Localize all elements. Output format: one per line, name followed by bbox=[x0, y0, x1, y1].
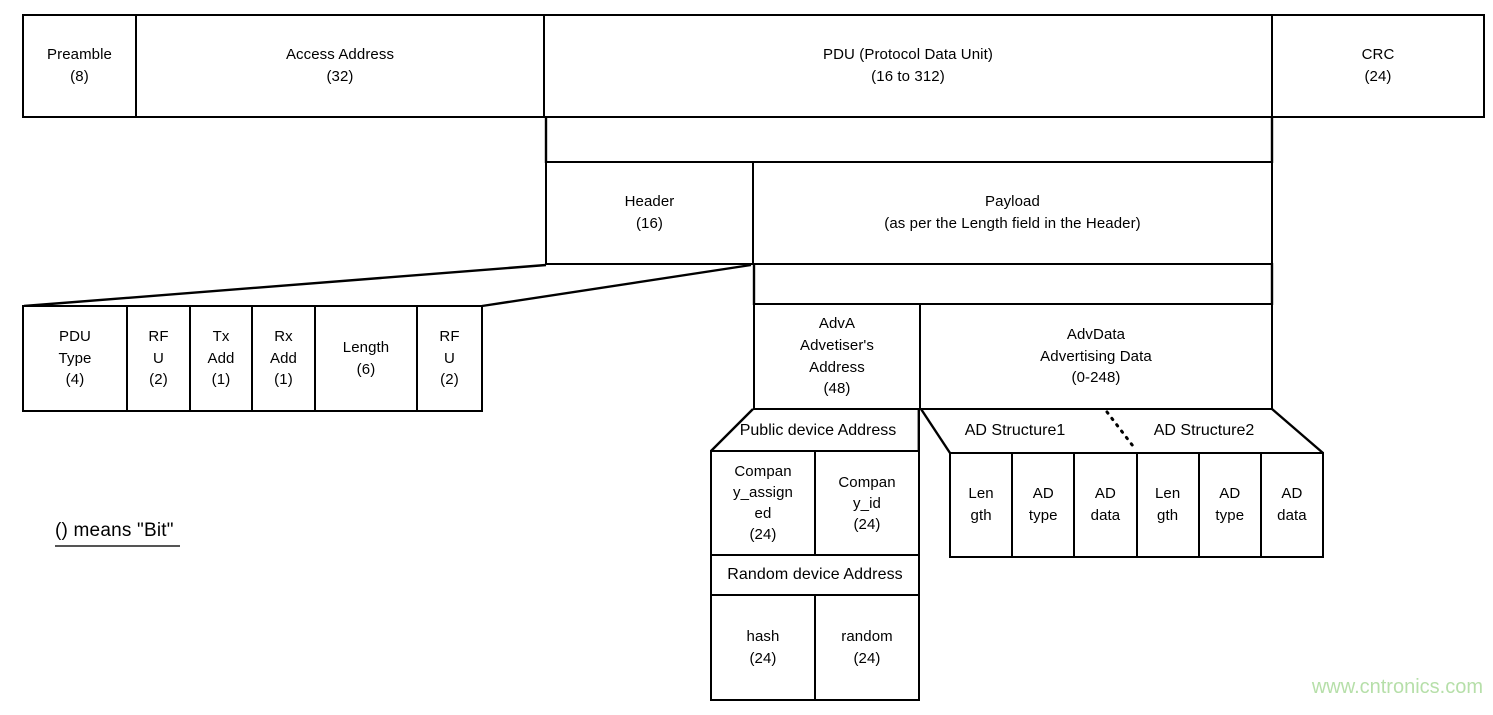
random-address-table: hash (24) random (24) bbox=[710, 596, 920, 701]
watermark-url: www.cntronics.com bbox=[1297, 676, 1483, 699]
ad-structure-table: Len gth AD type AD data Len gth AD type … bbox=[949, 452, 1324, 558]
random-label: random (24) bbox=[841, 626, 892, 670]
payload-label: Payload (as per the Length field in the … bbox=[884, 191, 1141, 235]
preamble-box: Preamble (8) bbox=[24, 16, 137, 116]
ad1-type-label: AD type bbox=[1029, 483, 1058, 527]
ble-packet-structure-diagram: Preamble (8) Access Address (32) PDU (Pr… bbox=[0, 0, 1493, 715]
rx-add-box: Rx Add (1) bbox=[253, 307, 316, 410]
rfu1-label: RF U (2) bbox=[148, 326, 168, 391]
ad2-type-label: AD type bbox=[1215, 483, 1244, 527]
pdu-breakdown-row: Header (16) Payload (as per the Length f… bbox=[545, 161, 1273, 265]
packet-row: Preamble (8) Access Address (32) PDU (Pr… bbox=[22, 14, 1485, 118]
ad1-data-box: AD data bbox=[1075, 454, 1137, 556]
payload-breakdown-row: AdvA Advetiser's Address (48) AdvData Ad… bbox=[753, 303, 1273, 410]
public-address-table: Compan y_assign ed (24) Compan y_id (24) bbox=[710, 450, 920, 556]
company-assigned-box: Compan y_assign ed (24) bbox=[712, 452, 816, 554]
length-label: Length (6) bbox=[343, 337, 389, 381]
crc-box: CRC (24) bbox=[1273, 16, 1483, 116]
ad1-data-label: AD data bbox=[1091, 483, 1121, 527]
advdata-label: AdvData Advertising Data (0-248) bbox=[1040, 324, 1152, 389]
bit-legend-note: () means "Bit" bbox=[55, 520, 180, 547]
adva-box: AdvA Advetiser's Address (48) bbox=[755, 305, 921, 408]
ad2-type-box: AD type bbox=[1200, 454, 1262, 556]
header-funnel-right bbox=[482, 265, 751, 306]
length-box: Length (6) bbox=[316, 307, 418, 410]
ad-structure1-band: AD Structure1 bbox=[950, 421, 1080, 440]
hash-box: hash (24) bbox=[712, 596, 816, 699]
rx-add-label: Rx Add (1) bbox=[270, 326, 297, 391]
pdu-type-label: PDU Type (4) bbox=[59, 326, 92, 391]
header-funnel-left bbox=[24, 265, 546, 306]
random-address-band: Random device Address bbox=[710, 556, 920, 596]
payload-box: Payload (as per the Length field in the … bbox=[754, 163, 1271, 263]
advdata-box: AdvData Advertising Data (0-248) bbox=[921, 305, 1271, 408]
preamble-label: Preamble (8) bbox=[47, 44, 112, 88]
rfu2-box: RF U (2) bbox=[418, 307, 481, 410]
pdu-type-box: PDU Type (4) bbox=[24, 307, 128, 410]
crc-label: CRC (24) bbox=[1362, 44, 1395, 88]
ad2-data-box: AD data bbox=[1262, 454, 1322, 556]
access-address-label: Access Address (32) bbox=[286, 44, 394, 88]
ad2-length-box: Len gth bbox=[1138, 454, 1200, 556]
company-assigned-label: Compan y_assign ed (24) bbox=[733, 461, 793, 545]
header-box: Header (16) bbox=[547, 163, 754, 263]
tx-add-label: Tx Add (1) bbox=[208, 326, 235, 391]
ad-structure-dotted-divider bbox=[1107, 412, 1136, 450]
adva-label: AdvA Advetiser's Address (48) bbox=[800, 313, 874, 400]
ad-band-slant-left bbox=[921, 409, 950, 453]
pdu-label: PDU (Protocol Data Unit) (16 to 312) bbox=[823, 44, 993, 88]
ad1-length-box: Len gth bbox=[951, 454, 1013, 556]
random-device-address-box: Random device Address bbox=[712, 556, 918, 594]
ad2-length-label: Len gth bbox=[1155, 483, 1180, 527]
rfu2-label: RF U (2) bbox=[439, 326, 459, 391]
company-id-label: Compan y_id (24) bbox=[838, 472, 895, 535]
ad2-data-label: AD data bbox=[1277, 483, 1307, 527]
ad-band-slant-right bbox=[1272, 409, 1323, 453]
access-address-box: Access Address (32) bbox=[137, 16, 545, 116]
random-box: random (24) bbox=[816, 596, 918, 699]
ad1-length-label: Len gth bbox=[968, 483, 993, 527]
hash-label: hash (24) bbox=[747, 626, 780, 670]
random-device-address-label: Random device Address bbox=[727, 563, 903, 586]
header-fields-row: PDU Type (4) RF U (2) Tx Add (1) Rx Add … bbox=[22, 305, 483, 412]
rfu1-box: RF U (2) bbox=[128, 307, 191, 410]
public-device-address-band: Public device Address bbox=[718, 421, 918, 440]
pdu-box: PDU (Protocol Data Unit) (16 to 312) bbox=[545, 16, 1273, 116]
ad-structure2-band: AD Structure2 bbox=[1138, 421, 1270, 440]
tx-add-box: Tx Add (1) bbox=[191, 307, 253, 410]
ad1-type-box: AD type bbox=[1013, 454, 1075, 556]
header-label: Header (16) bbox=[625, 191, 675, 235]
company-id-box: Compan y_id (24) bbox=[816, 452, 918, 554]
